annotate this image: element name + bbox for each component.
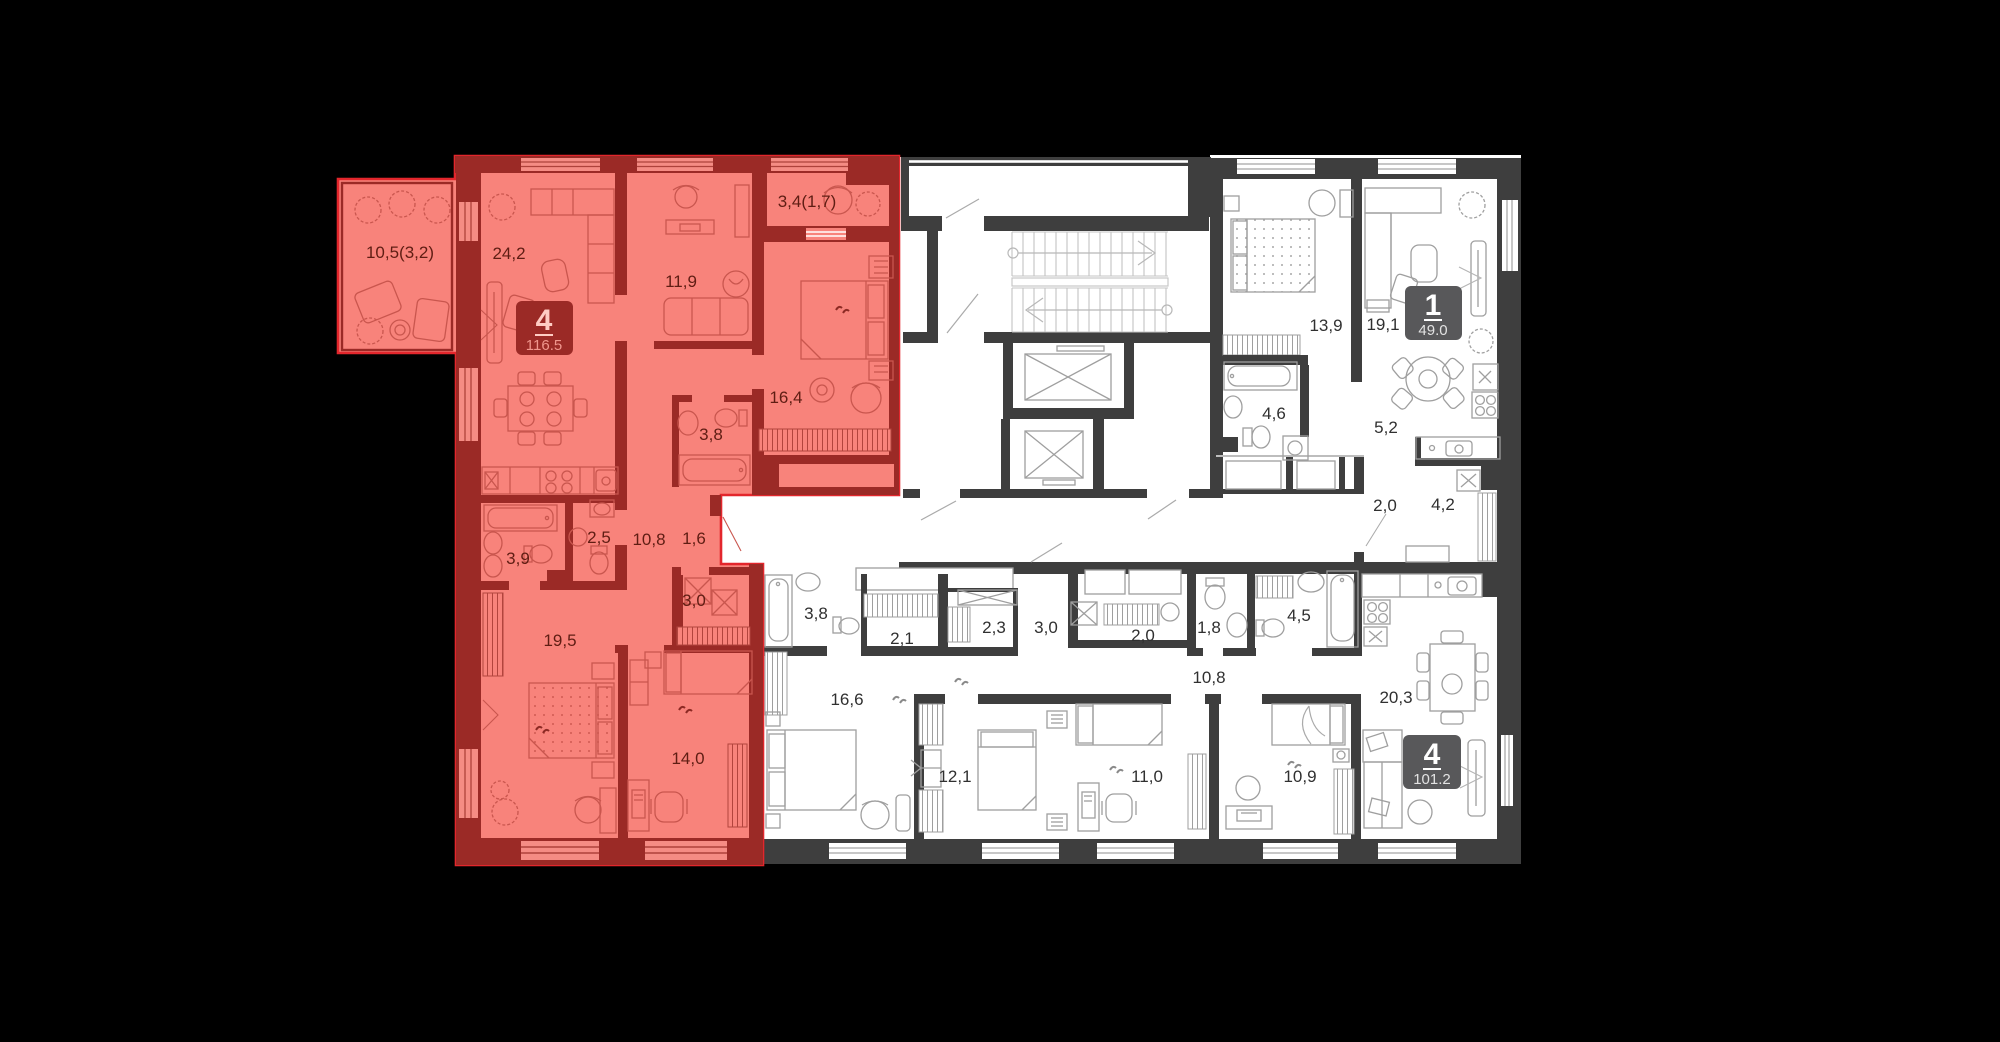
svg-text:2,0: 2,0 <box>1373 496 1397 515</box>
svg-text:4: 4 <box>536 304 553 337</box>
svg-text:10,8: 10,8 <box>1192 668 1225 687</box>
svg-text:2,3: 2,3 <box>982 618 1006 637</box>
svg-text:10,8: 10,8 <box>632 530 665 549</box>
svg-text:11,9: 11,9 <box>665 272 697 291</box>
svg-text:3,0: 3,0 <box>1034 618 1058 637</box>
svg-text:4: 4 <box>1424 738 1441 771</box>
svg-text:101.2: 101.2 <box>1413 771 1451 788</box>
svg-text:14,0: 14,0 <box>671 749 704 768</box>
svg-text:5,2: 5,2 <box>1374 418 1398 437</box>
svg-text:16,6: 16,6 <box>830 690 863 709</box>
svg-text:49.0: 49.0 <box>1418 322 1447 339</box>
svg-text:2,0: 2,0 <box>1131 626 1155 645</box>
svg-text:2,5: 2,5 <box>587 528 611 547</box>
svg-text:11,0: 11,0 <box>1131 767 1163 786</box>
svg-text:12,1: 12,1 <box>938 767 971 786</box>
svg-text:4,5: 4,5 <box>1287 606 1311 625</box>
svg-text:3,8: 3,8 <box>699 425 723 444</box>
svg-text:3,4(1,7): 3,4(1,7) <box>778 192 837 211</box>
svg-text:19,5: 19,5 <box>543 631 576 650</box>
svg-text:1: 1 <box>1425 289 1442 322</box>
svg-text:3,9: 3,9 <box>506 549 530 568</box>
svg-text:4,6: 4,6 <box>1262 404 1286 423</box>
svg-text:2,1: 2,1 <box>890 629 914 648</box>
svg-text:19,1: 19,1 <box>1366 315 1399 334</box>
svg-text:10,5(3,2): 10,5(3,2) <box>366 243 434 262</box>
svg-text:13,9: 13,9 <box>1309 316 1342 335</box>
svg-text:3,8: 3,8 <box>804 604 828 623</box>
svg-text:16,4: 16,4 <box>769 388 802 407</box>
svg-text:24,2: 24,2 <box>492 244 525 263</box>
svg-text:10,9: 10,9 <box>1283 767 1316 786</box>
svg-text:4,2: 4,2 <box>1431 495 1455 514</box>
svg-text:1,6: 1,6 <box>682 529 706 548</box>
svg-text:116.5: 116.5 <box>526 337 562 354</box>
svg-text:20,3: 20,3 <box>1379 688 1412 707</box>
svg-text:3,0: 3,0 <box>682 591 706 610</box>
svg-text:1,8: 1,8 <box>1197 618 1221 637</box>
